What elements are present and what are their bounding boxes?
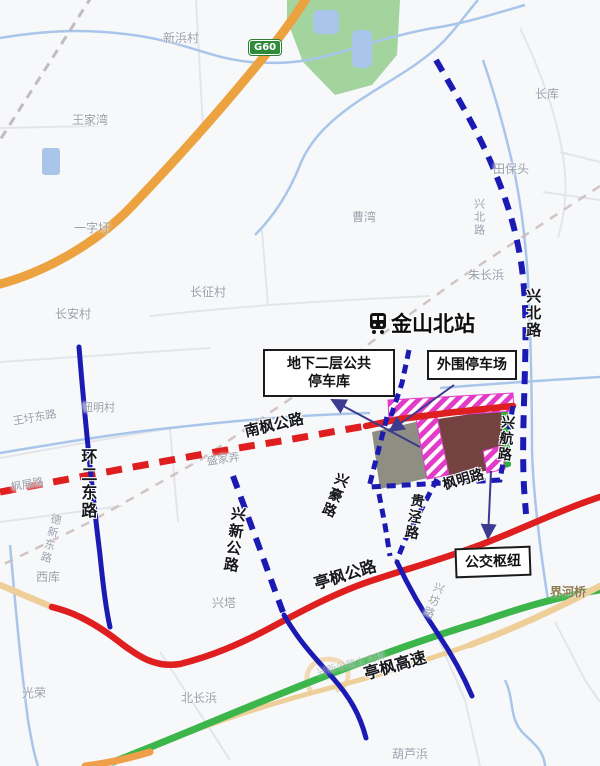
huanerdong-road-path [79, 347, 110, 627]
greenspace-area [287, 0, 400, 95]
pond [42, 148, 60, 175]
tingfeng-road-path [52, 497, 600, 665]
nanfeng-road-dashed-path [0, 426, 366, 492]
callout-underground-parking: 地下二层公共 停车库 [263, 349, 395, 397]
map-page: { "station": { "name": "金山北站", "icon": "… [0, 0, 600, 766]
station-marker: 金山北站 [368, 308, 475, 338]
station-name: 金山北站 [391, 308, 475, 338]
g60-highway-badge: G60 [249, 40, 281, 55]
callout-line: 地下二层公共 [273, 355, 385, 373]
train-icon [368, 311, 388, 335]
pond [313, 10, 339, 34]
guijing-road-dashed-path [397, 479, 437, 560]
callout-line: 停车库 [273, 373, 385, 391]
xingxin-road-dashed-path [233, 476, 284, 615]
tingfeng-road-west-tan [0, 585, 52, 607]
callout-outer-parking: 外围停车场 [427, 350, 517, 380]
block-west-dashed [379, 494, 390, 556]
callout-bus-hub: 公交枢纽 [454, 546, 531, 579]
railway-line [0, 0, 92, 140]
callout-arrow-bus-hub [488, 471, 491, 538]
expressway-orange-end [85, 752, 150, 766]
